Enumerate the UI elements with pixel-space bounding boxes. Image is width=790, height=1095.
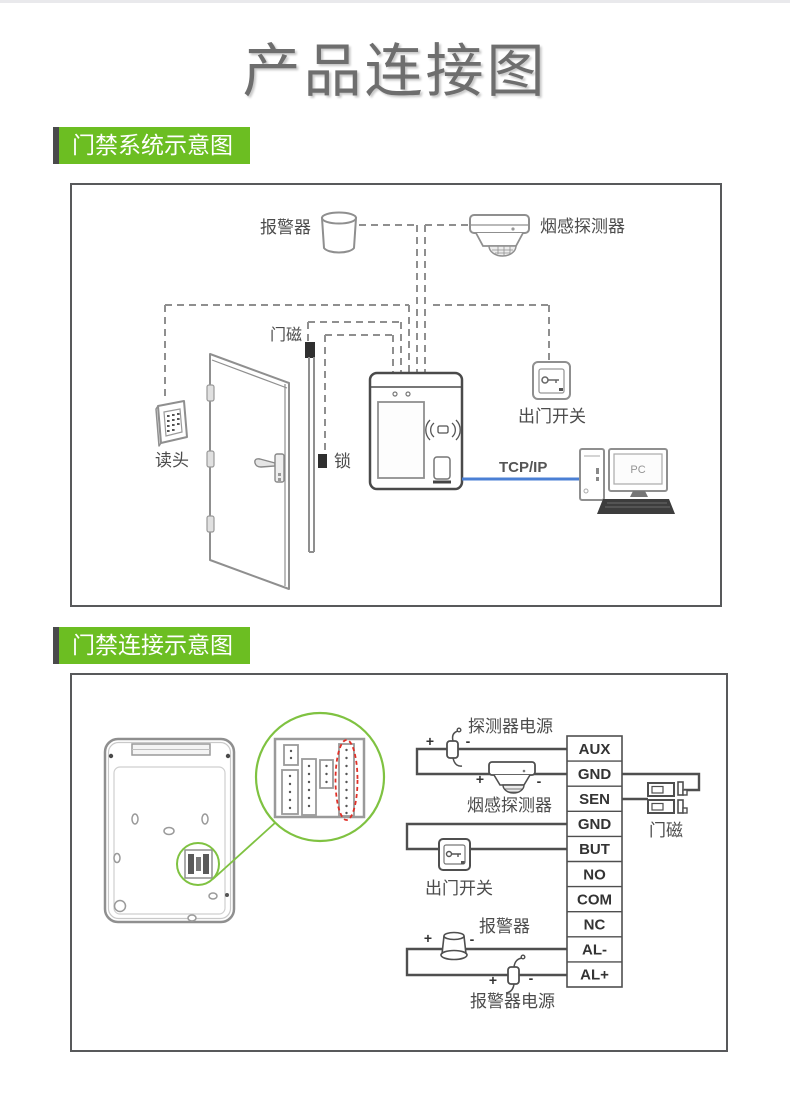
door-magnet-label: 门磁 bbox=[649, 821, 683, 840]
alarm-power-label: 报警器电源 bbox=[470, 992, 555, 1011]
door-frame bbox=[309, 357, 314, 552]
alarm-label: 报警器 bbox=[479, 917, 530, 936]
screw-icon bbox=[226, 754, 230, 758]
terminal-block: AUX GND SEN GND BUT NO COM NC AL- AL+ bbox=[567, 736, 622, 987]
alarm-label: 报警器 bbox=[260, 218, 311, 237]
exit-switch-label: 出门开关 bbox=[425, 879, 493, 898]
terminal-cell: SEN bbox=[579, 791, 610, 808]
plus-sign: + bbox=[476, 771, 484, 787]
detector-power-label: 探测器电源 bbox=[468, 717, 553, 736]
hinge-icon bbox=[207, 385, 214, 401]
minus-sign: - bbox=[529, 970, 534, 986]
terminal-cell: AL- bbox=[582, 942, 607, 959]
plus-sign: + bbox=[426, 733, 434, 749]
hinge-icon bbox=[207, 451, 214, 467]
pc-icon: PC bbox=[580, 449, 675, 514]
device-back-panel bbox=[105, 739, 234, 922]
lock-icon bbox=[318, 454, 327, 468]
tcpip-label: TCP/IP bbox=[499, 459, 547, 476]
exit-switch-label: 出门开关 bbox=[518, 407, 586, 426]
alarm-siren-icon bbox=[322, 213, 356, 253]
detector-power-icon bbox=[447, 728, 462, 766]
hinge-icon bbox=[207, 516, 214, 532]
door-magnet-label: 门磁 bbox=[270, 326, 302, 344]
smoke-detector-label: 烟感探测器 bbox=[540, 217, 625, 236]
terminal-cell: AUX bbox=[579, 741, 611, 758]
connection-diagram: + - 探测器电源 + - 烟感探测器 出门开关 + - 报警器 + - 报警器… bbox=[72, 675, 726, 1050]
terminal-cell: NO bbox=[583, 866, 606, 883]
reader-label: 读头 bbox=[155, 451, 189, 470]
section-heading-text: 门禁系统示意图 bbox=[59, 127, 250, 164]
system-diagram-panel: 报警器 烟感探测器 门磁 锁 bbox=[70, 183, 722, 607]
lock-label: 锁 bbox=[334, 452, 351, 471]
door-magnet-icon bbox=[305, 342, 315, 358]
screw-icon bbox=[109, 754, 113, 758]
smoke-detector-icon bbox=[470, 215, 529, 256]
minus-sign: - bbox=[470, 931, 475, 947]
connector-board bbox=[275, 739, 364, 820]
smoke-detector-label: 烟感探测器 bbox=[467, 796, 552, 815]
door-magnet-icon bbox=[648, 782, 687, 813]
page-title: 产品连接图 bbox=[0, 24, 790, 108]
top-divider bbox=[0, 0, 790, 3]
exit-switch-icon bbox=[439, 839, 470, 870]
terminal-screen bbox=[378, 402, 424, 478]
exit-switch-icon bbox=[533, 362, 570, 399]
plus-sign: + bbox=[424, 930, 432, 946]
fingerprint-module bbox=[434, 457, 450, 479]
section-header-connection: 门禁连接示意图 bbox=[53, 627, 250, 664]
system-diagram: 报警器 烟感探测器 门磁 锁 bbox=[72, 185, 720, 605]
minus-sign: - bbox=[537, 773, 542, 789]
door-icon bbox=[207, 354, 289, 589]
alarm-siren-icon bbox=[441, 933, 467, 960]
terminal-cell: COM bbox=[577, 891, 612, 908]
section-header-system: 门禁系统示意图 bbox=[53, 127, 250, 164]
smoke-detector-icon bbox=[489, 762, 535, 793]
terminal-cell: NC bbox=[584, 917, 606, 934]
plus-sign: + bbox=[489, 972, 497, 988]
terminal-cell: GND bbox=[578, 766, 612, 783]
section-heading-text: 门禁连接示意图 bbox=[59, 627, 250, 664]
access-terminal-icon bbox=[370, 373, 462, 489]
terminal-cell: AL+ bbox=[580, 967, 609, 984]
terminal-cell: BUT bbox=[579, 841, 610, 858]
connection-diagram-panel: + - 探测器电源 + - 烟感探测器 出门开关 + - 报警器 + - 报警器… bbox=[70, 673, 728, 1052]
terminal-cell: GND bbox=[578, 816, 612, 833]
reader-icon bbox=[156, 401, 187, 446]
pc-label: PC bbox=[630, 464, 645, 476]
